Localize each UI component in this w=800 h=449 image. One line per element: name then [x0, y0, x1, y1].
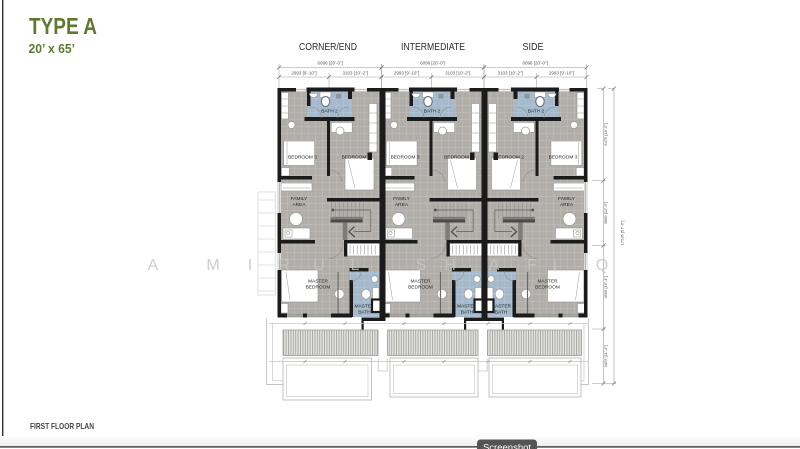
svg-text:BEDROOM 2: BEDROOM 2: [444, 155, 473, 161]
svg-text:BATH 2: BATH 2: [528, 108, 545, 114]
svg-text:BATH 2: BATH 2: [321, 108, 338, 114]
svg-text:17536 [57’-6”]: 17536 [57’-6”]: [620, 221, 625, 246]
svg-text:BATH 2: BATH 2: [424, 108, 441, 114]
svg-text:5475 [18’-0”]: 5475 [18’-0”]: [603, 123, 608, 145]
svg-text:I: I: [553, 257, 557, 274]
svg-text:3103 [10’-2”]: 3103 [10’-2”]: [445, 70, 470, 75]
svg-text:3103 [10’-2”]: 3103 [10’-2”]: [498, 70, 523, 75]
svg-text:FAMILY: FAMILY: [393, 196, 411, 202]
svg-text:Q: Q: [596, 257, 608, 274]
svg-text:A: A: [489, 257, 500, 274]
svg-text:Screenshot: Screenshot: [483, 443, 531, 449]
svg-text:A: A: [148, 257, 159, 274]
svg-text:BEDROOM 3: BEDROOM 3: [549, 155, 578, 161]
svg-text:BEDROOM 2: BEDROOM 2: [495, 155, 524, 161]
svg-text:F: F: [527, 257, 537, 274]
svg-text:S: S: [416, 257, 427, 274]
svg-text:SIDE: SIDE: [523, 42, 544, 53]
svg-text:CORNER/END: CORNER/END: [299, 42, 357, 53]
svg-text:AREA: AREA: [560, 202, 574, 208]
svg-text:M: M: [206, 257, 219, 274]
svg-text:H: H: [444, 257, 456, 274]
svg-text:6096 [20’-0”]: 6096 [20’-0”]: [523, 61, 548, 66]
svg-text:3425 [11’-3”]: 3425 [11’-3”]: [603, 345, 608, 367]
svg-text:AREA: AREA: [292, 202, 306, 208]
svg-text:FIRST FLOOR PLAN: FIRST FLOOR PLAN: [30, 421, 94, 431]
svg-text:L: L: [351, 257, 360, 274]
svg-text:I: I: [248, 257, 252, 274]
svg-text:BEDROOM 2: BEDROOM 2: [342, 155, 371, 161]
svg-text:FAMILY: FAMILY: [558, 196, 576, 202]
svg-text:3886 [12’-9”]: 3886 [12’-9”]: [603, 202, 608, 224]
svg-text:MASTER: MASTER: [538, 279, 559, 285]
svg-text:BEDROOM: BEDROOM: [306, 285, 331, 291]
svg-text:2993 [9’-10”]: 2993 [9’-10”]: [291, 70, 316, 75]
svg-text:MASTER: MASTER: [308, 279, 329, 285]
svg-text:U: U: [313, 257, 325, 274]
svg-text:INTERMEDIATE: INTERMEDIATE: [401, 42, 465, 53]
svg-text:2993 [9’-10”]: 2993 [9’-10”]: [549, 70, 574, 75]
svg-text:BATH: BATH: [358, 310, 371, 316]
svg-text:BATH: BATH: [495, 310, 508, 316]
svg-text:BATH: BATH: [461, 310, 474, 316]
svg-text:3103 [10’-2”]: 3103 [10’-2”]: [343, 70, 368, 75]
svg-text:TYPE A: TYPE A: [29, 13, 97, 39]
svg-text:6096 [20’-0”]: 6096 [20’-0”]: [420, 61, 445, 66]
svg-text:BEDROOM 3: BEDROOM 3: [288, 155, 317, 161]
svg-text:20’ x 65’: 20’ x 65’: [29, 42, 76, 56]
svg-text:BEDROOM: BEDROOM: [408, 285, 433, 291]
svg-text:2993 [9’-10”]: 2993 [9’-10”]: [394, 70, 419, 75]
svg-text:MASTER: MASTER: [411, 279, 432, 285]
svg-text:6096 [20’-0”]: 6096 [20’-0”]: [318, 61, 343, 66]
svg-text:4966 [16’-4”]: 4966 [16’-4”]: [603, 276, 608, 298]
svg-text:BEDROOM 3: BEDROOM 3: [391, 155, 420, 161]
svg-text:BEDROOM: BEDROOM: [535, 285, 560, 291]
svg-text:AREA: AREA: [395, 202, 409, 208]
svg-text:R: R: [278, 257, 290, 274]
svg-text:FAMILY: FAMILY: [291, 196, 309, 202]
